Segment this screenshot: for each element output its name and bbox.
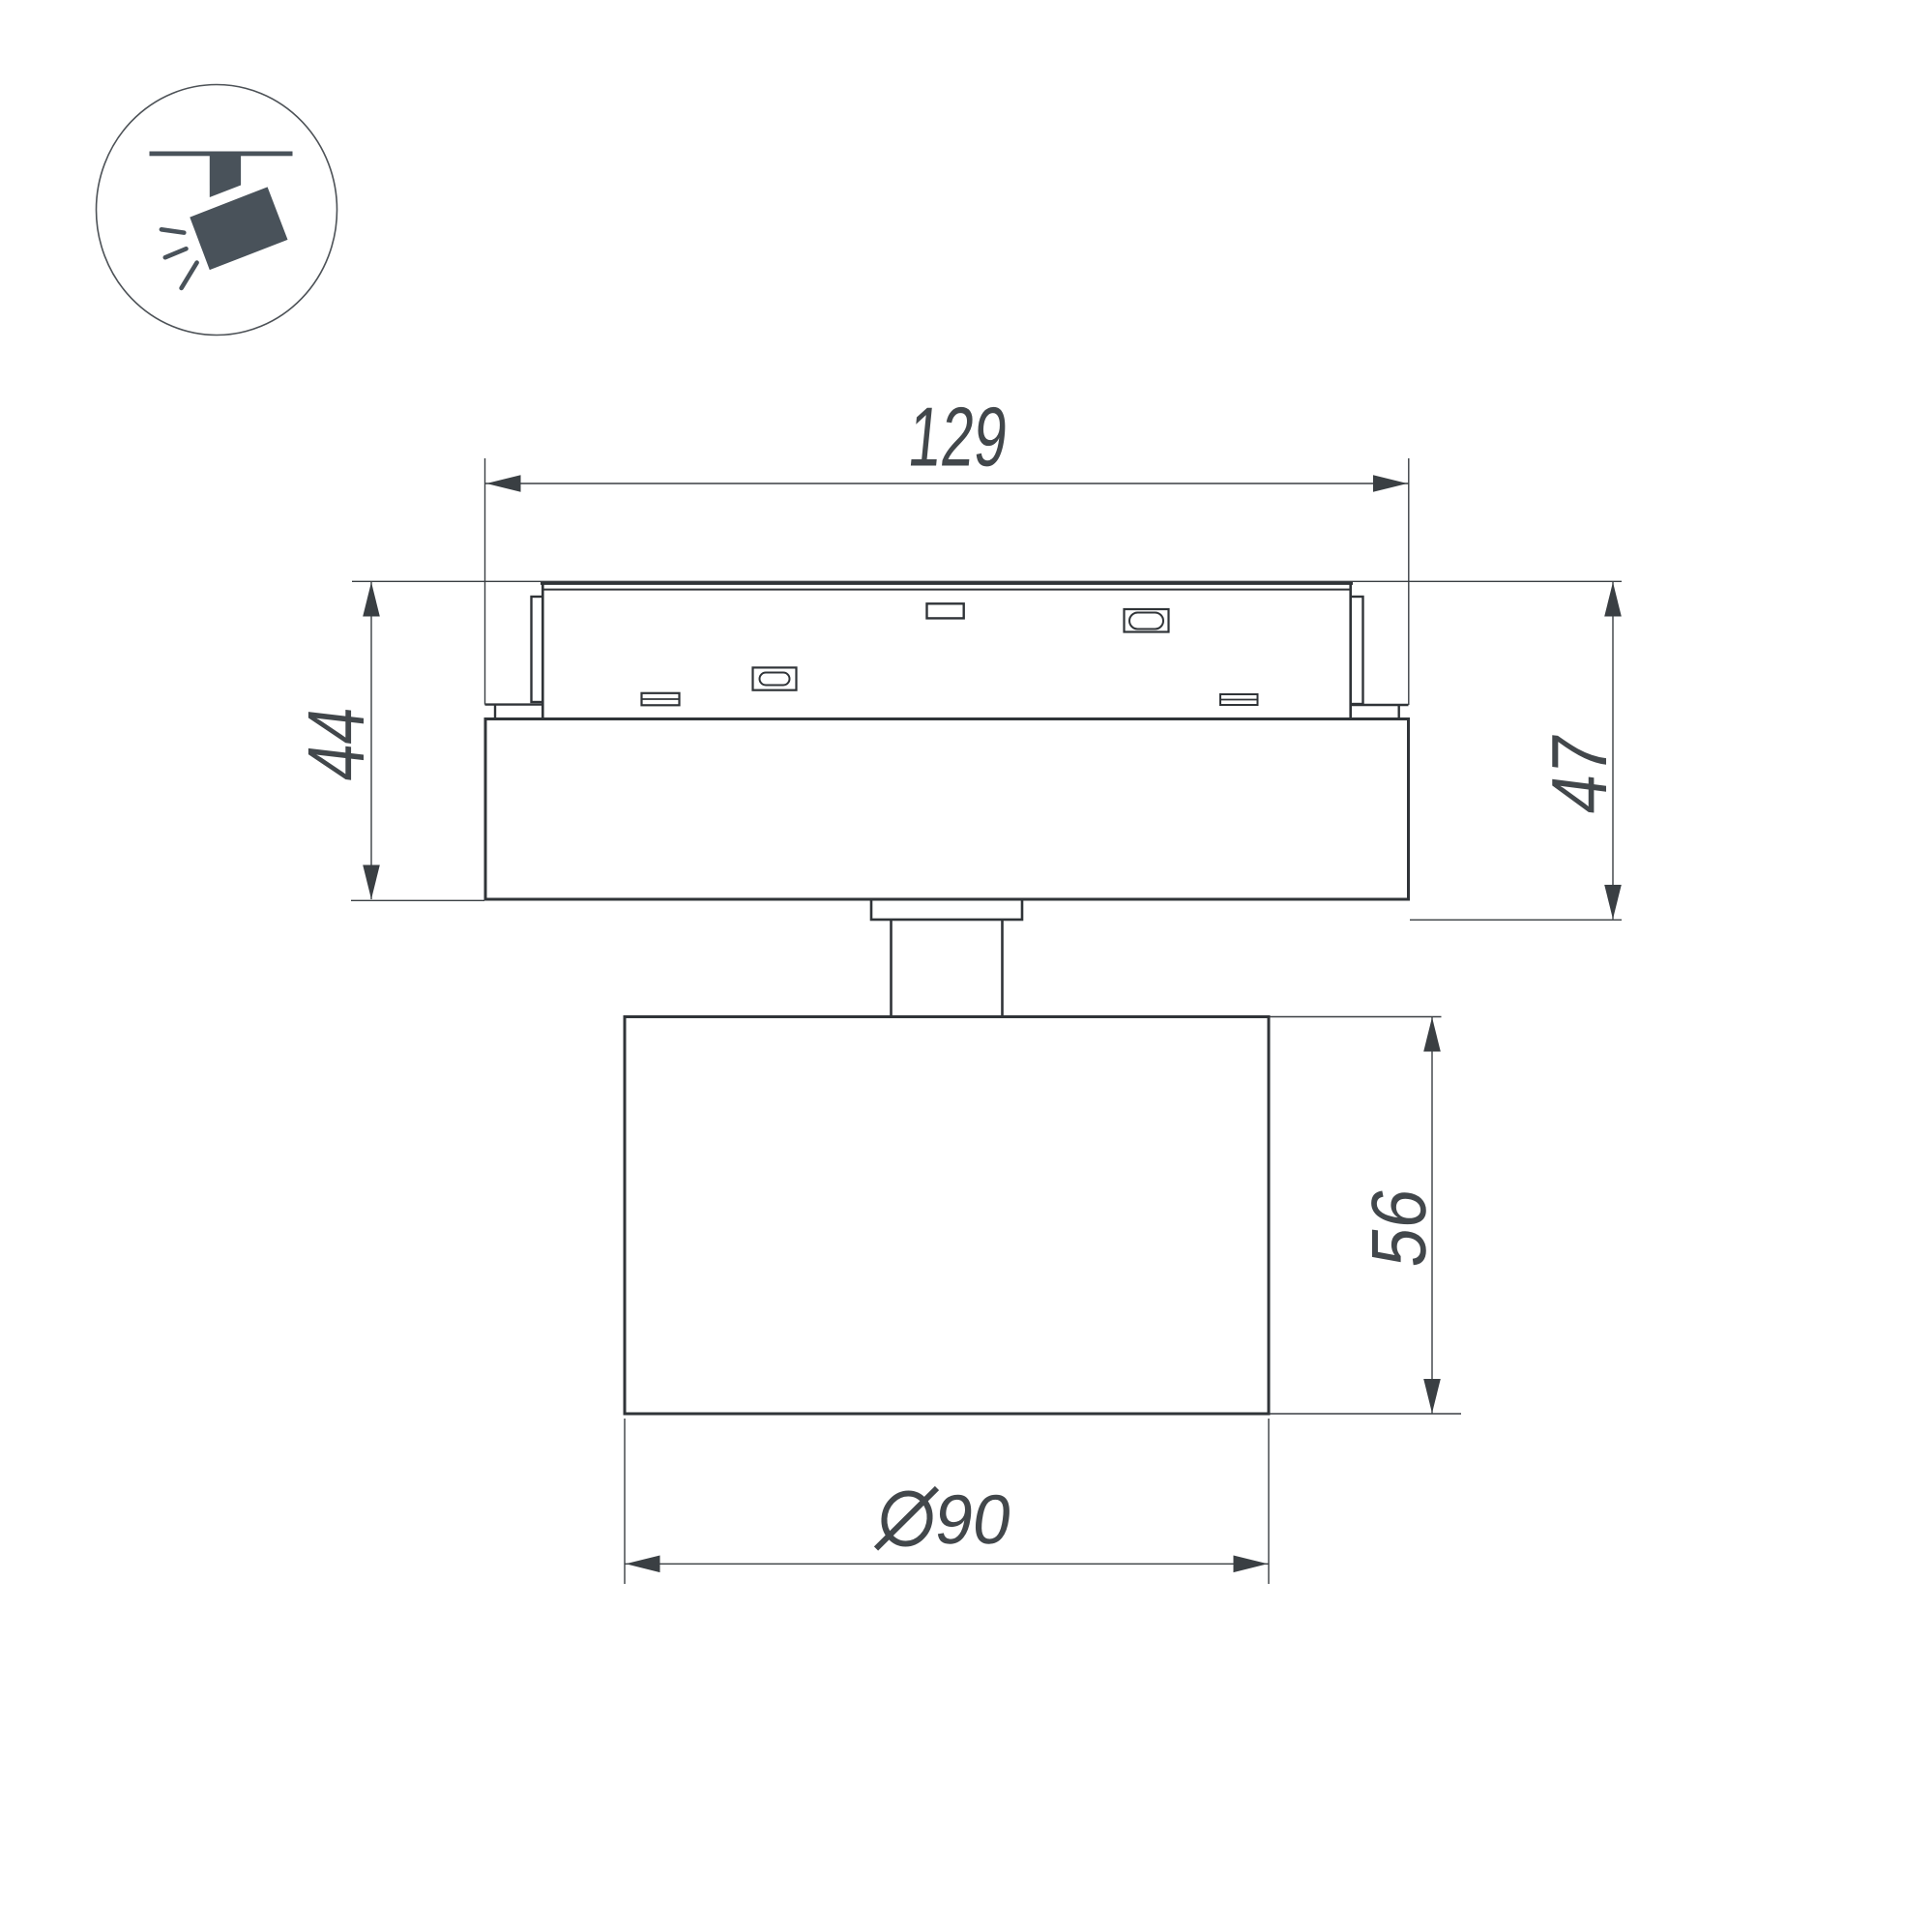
svg-text:47: 47 — [1537, 729, 1624, 818]
svg-text:56: 56 — [1357, 1184, 1443, 1272]
svg-text:129: 129 — [904, 390, 1011, 483]
svg-text:90: 90 — [930, 1481, 1017, 1559]
svg-text:44: 44 — [292, 702, 382, 785]
